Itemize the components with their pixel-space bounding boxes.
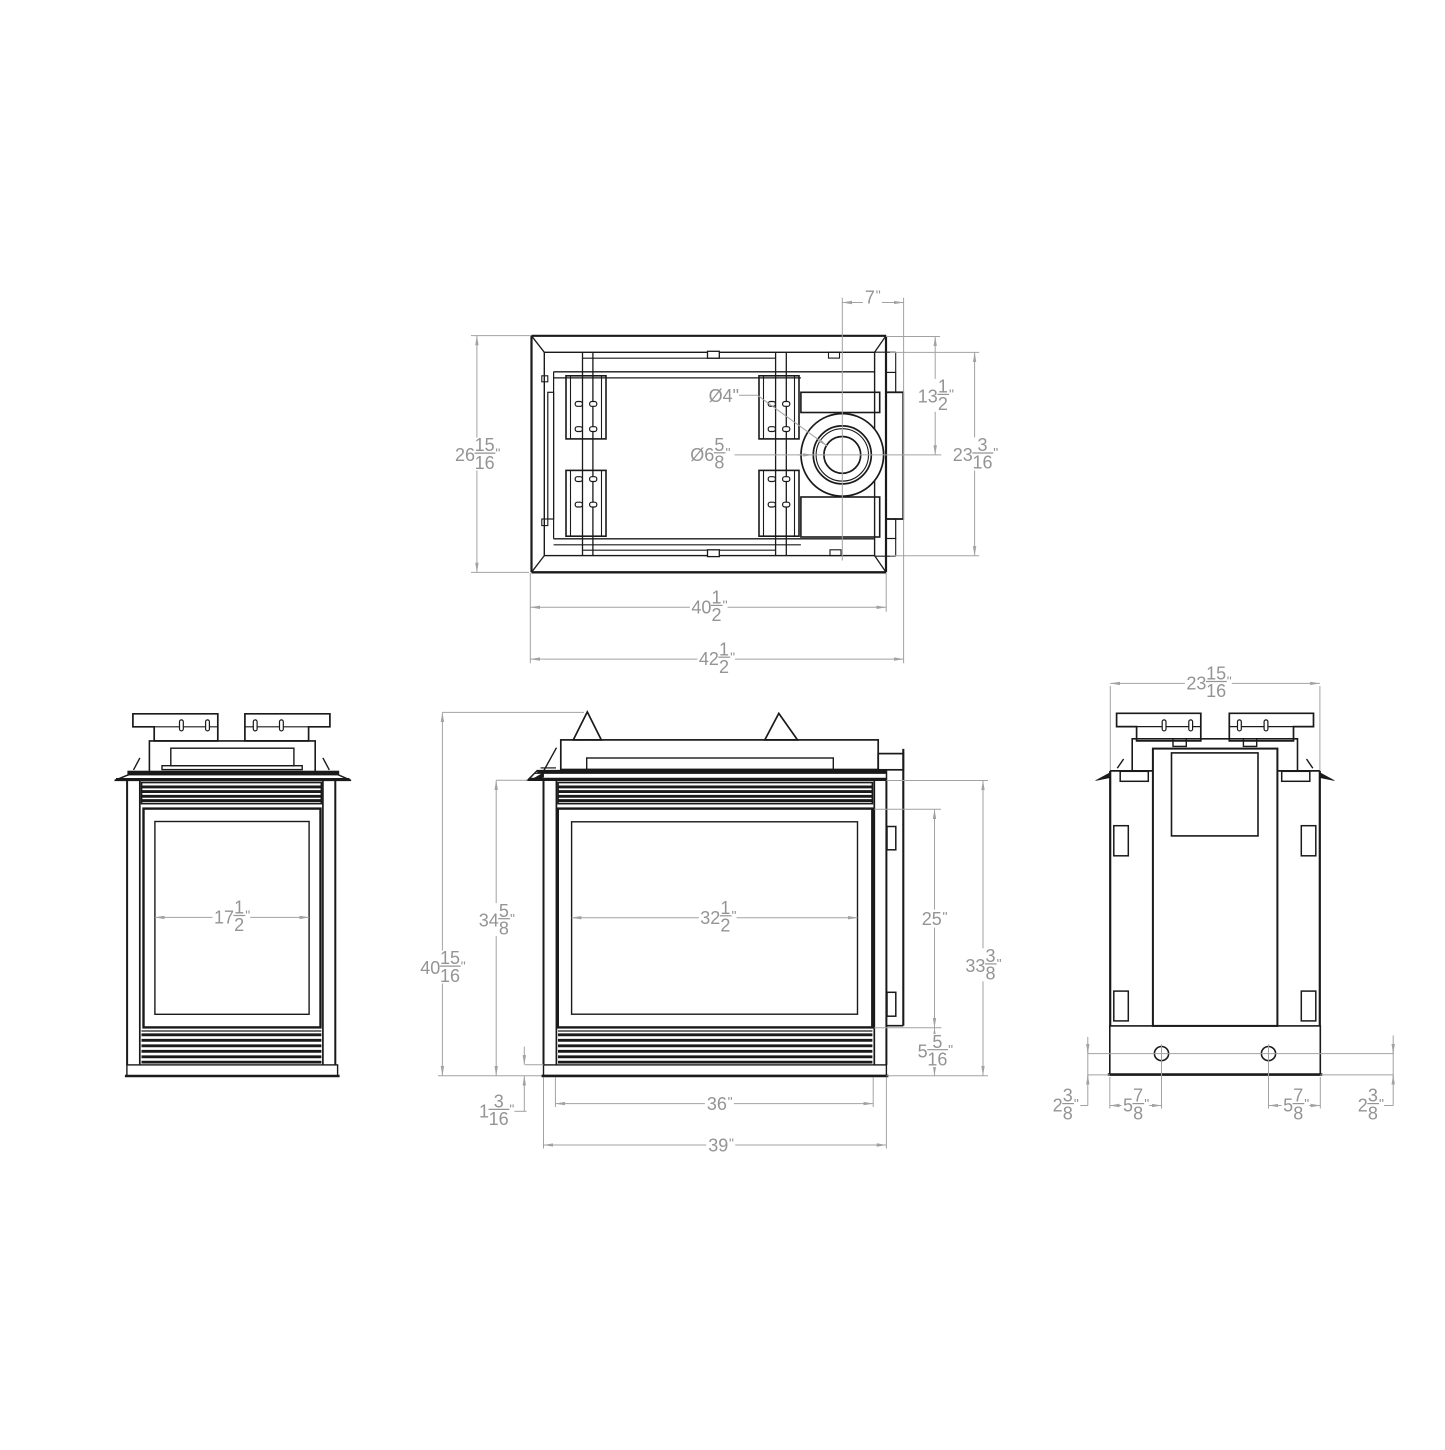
svg-text:2: 2 <box>938 394 948 414</box>
svg-text:2: 2 <box>711 605 721 625</box>
svg-text:16: 16 <box>475 453 495 473</box>
svg-text:16: 16 <box>489 1109 509 1129</box>
svg-text:39: 39 <box>708 1136 728 1156</box>
svg-text:25: 25 <box>922 909 942 929</box>
svg-text:": " <box>948 1041 953 1057</box>
svg-text:16: 16 <box>972 453 992 473</box>
svg-text:": " <box>1144 1095 1149 1111</box>
svg-text:": " <box>461 958 466 974</box>
svg-text:": " <box>997 956 1002 972</box>
svg-text:": " <box>943 908 948 924</box>
svg-text:": " <box>1074 1095 1079 1111</box>
svg-text:17: 17 <box>214 908 234 928</box>
svg-text:5: 5 <box>918 1042 928 1062</box>
svg-text:16: 16 <box>440 966 460 986</box>
svg-text:42: 42 <box>699 649 719 669</box>
svg-text:32: 32 <box>700 908 720 928</box>
svg-text:": " <box>509 1101 514 1117</box>
svg-text:": " <box>993 445 998 461</box>
svg-text:": " <box>1227 673 1232 689</box>
svg-text:34: 34 <box>479 911 499 931</box>
svg-text:": " <box>245 907 250 923</box>
svg-text:": " <box>495 445 500 461</box>
svg-text:2: 2 <box>1358 1096 1368 1116</box>
svg-text:5: 5 <box>1283 1096 1293 1116</box>
svg-text:40: 40 <box>420 958 440 978</box>
svg-text:23: 23 <box>953 445 973 465</box>
svg-text:": " <box>1379 1095 1384 1111</box>
svg-text:40: 40 <box>691 597 711 617</box>
svg-text:": " <box>730 649 735 665</box>
svg-text:26: 26 <box>455 445 475 465</box>
svg-text:": " <box>949 386 954 402</box>
svg-text:2: 2 <box>1053 1096 1063 1116</box>
svg-text:Ø6: Ø6 <box>690 445 714 465</box>
svg-text:36: 36 <box>707 1094 727 1114</box>
svg-text:": " <box>728 1093 733 1109</box>
svg-text:8: 8 <box>1293 1103 1303 1123</box>
svg-text:": " <box>510 910 515 926</box>
svg-text:2: 2 <box>719 657 729 677</box>
svg-text:16: 16 <box>1206 681 1226 701</box>
svg-text:": " <box>876 287 881 303</box>
svg-text:2: 2 <box>234 915 244 935</box>
svg-text:13: 13 <box>918 386 938 406</box>
svg-text:8: 8 <box>499 918 509 938</box>
svg-text:33: 33 <box>965 956 985 976</box>
svg-text:23: 23 <box>1186 674 1206 694</box>
svg-text:8: 8 <box>714 453 724 473</box>
svg-text:8: 8 <box>1133 1103 1143 1123</box>
svg-text:": " <box>725 445 730 461</box>
svg-text:8: 8 <box>985 964 995 984</box>
svg-text:": " <box>1304 1095 1309 1111</box>
svg-text:": " <box>729 1135 734 1151</box>
svg-text:8: 8 <box>1063 1103 1073 1123</box>
svg-text:": " <box>723 597 728 613</box>
svg-text:Ø4": Ø4" <box>709 386 739 406</box>
svg-text:5: 5 <box>1123 1096 1133 1116</box>
svg-text:1: 1 <box>479 1101 489 1121</box>
svg-text:2: 2 <box>720 916 730 936</box>
svg-text:7: 7 <box>865 288 875 308</box>
svg-text:": " <box>732 908 737 924</box>
svg-text:8: 8 <box>1368 1103 1378 1123</box>
svg-text:16: 16 <box>927 1049 947 1069</box>
